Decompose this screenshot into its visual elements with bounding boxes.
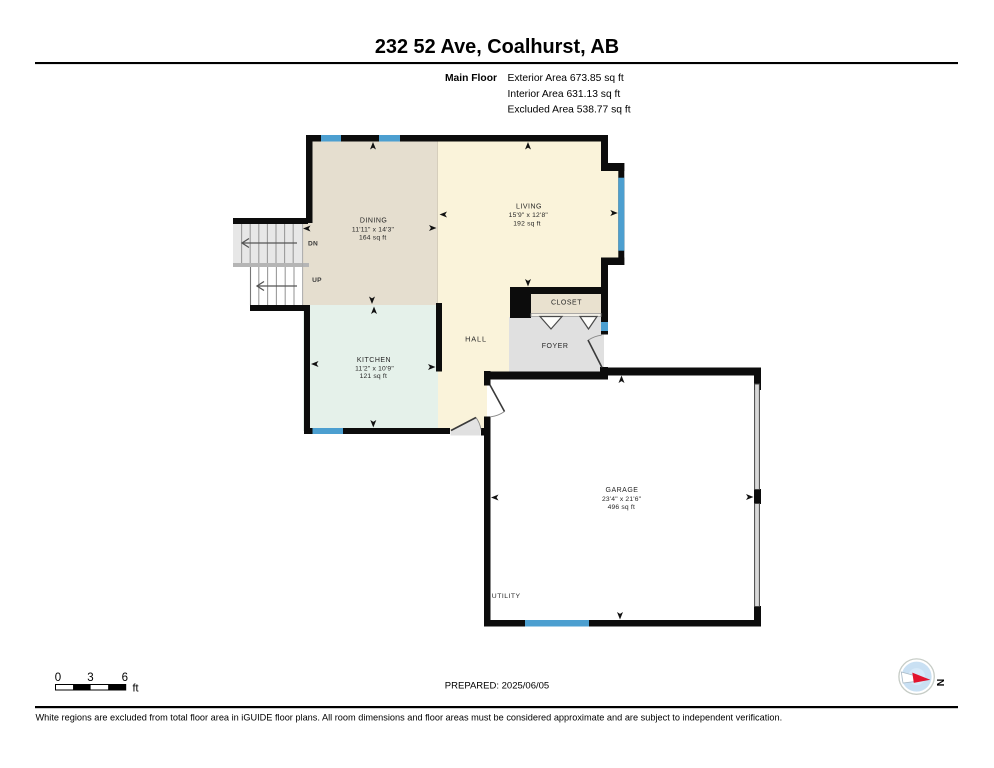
svg-text:CLOSET: CLOSET (551, 299, 582, 306)
svg-text:232 52 Ave, Coalhurst, AB: 232 52 Ave, Coalhurst, AB (375, 36, 619, 58)
svg-text:0: 0 (55, 672, 61, 684)
svg-text:LIVING: LIVING (516, 203, 542, 210)
svg-text:121 sq ft: 121 sq ft (360, 373, 387, 380)
svg-text:UP: UP (312, 277, 322, 284)
svg-text:PREPARED: 2025/06/05: PREPARED: 2025/06/05 (445, 681, 549, 692)
svg-text:11'11" x 14'3": 11'11" x 14'3" (352, 227, 395, 234)
svg-text:3: 3 (87, 672, 93, 684)
svg-text:Excluded Area 538.77 sq ft: Excluded Area 538.77 sq ft (508, 105, 631, 116)
svg-text:6: 6 (122, 672, 128, 684)
svg-text:KITCHEN: KITCHEN (357, 357, 391, 364)
svg-text:23'4" x 21'6": 23'4" x 21'6" (602, 496, 642, 503)
svg-text:N: N (934, 679, 946, 687)
svg-text:DINING: DINING (360, 218, 388, 225)
svg-text:UTILITY: UTILITY (492, 593, 521, 600)
svg-text:11'2" x 10'9": 11'2" x 10'9" (355, 365, 394, 372)
svg-text:FOYER: FOYER (542, 343, 569, 350)
svg-text:164 sq ft: 164 sq ft (359, 235, 386, 242)
svg-text:White regions are excluded fro: White regions are excluded from total fl… (36, 713, 783, 723)
svg-text:DN: DN (308, 241, 318, 248)
svg-text:Exterior Area 673.85 sq ft: Exterior Area 673.85 sq ft (508, 73, 624, 84)
svg-text:HALL: HALL (465, 335, 487, 344)
svg-text:GARAGE: GARAGE (606, 487, 639, 494)
svg-text:Interior Area 631.13 sq ft: Interior Area 631.13 sq ft (508, 89, 621, 100)
svg-text:ft: ft (133, 683, 139, 695)
svg-text:496 sq ft: 496 sq ft (608, 504, 635, 511)
svg-text:15'9" x 12'8": 15'9" x 12'8" (509, 212, 549, 219)
svg-text:Main Floor: Main Floor (445, 73, 497, 84)
svg-text:192 sq ft: 192 sq ft (513, 220, 540, 227)
